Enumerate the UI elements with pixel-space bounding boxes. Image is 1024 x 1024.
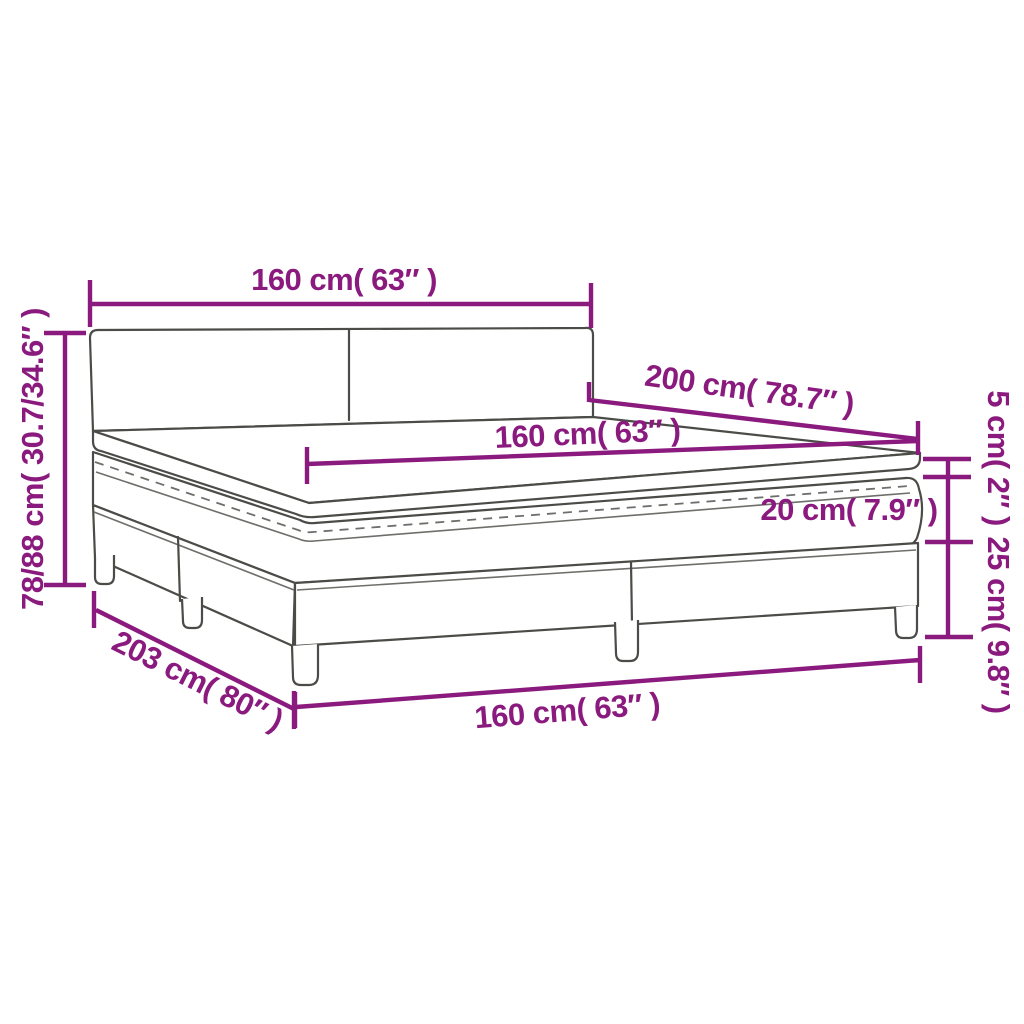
dimension-label-base-height: 25 cm( 9.8″ ) <box>981 536 1016 713</box>
dimension-label-total-length: 203 cm( 80″ ) <box>107 623 289 737</box>
dimension-label-headboard-width: 160 cm( 63″ ) <box>251 262 437 297</box>
bed-leg <box>615 620 638 661</box>
base-foot-seam <box>631 562 632 624</box>
bed-leg <box>895 605 917 638</box>
dimension-label-total-height: 78/88 cm( 30.7/34.6″ ) <box>15 308 50 610</box>
bed-dimension-diagram: 160 cm( 63″ ) 200 cm( 78.7″ ) 160 cm( 63… <box>0 0 1024 1024</box>
headboard-front-face <box>90 328 593 431</box>
dimension-line-height-stack <box>923 459 973 637</box>
bed-leg <box>182 597 202 628</box>
bed-leg <box>292 644 318 685</box>
bed-leg <box>95 555 114 584</box>
dimension-label-mattress-height: 20 cm( 7.9″ ) <box>760 492 937 527</box>
dimension-label-topper-height: 5 cm( 2″ ) <box>981 390 1016 526</box>
diagram-canvas: 160 cm( 63″ ) 200 cm( 78.7″ ) 160 cm( 63… <box>0 0 1024 1024</box>
dimension-line-total-height <box>44 333 86 585</box>
